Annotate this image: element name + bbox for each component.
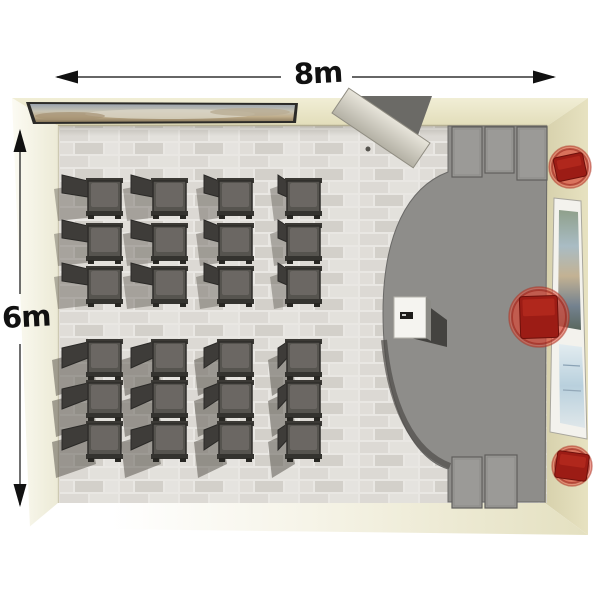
width-dimension-label: 8m [282, 54, 354, 92]
stage-cabinet [485, 455, 517, 508]
wall-panorama-picture [26, 102, 298, 124]
chair [196, 263, 254, 309]
podium-screen [400, 312, 413, 319]
chair [54, 175, 123, 221]
red-stool-top [549, 146, 591, 188]
chair [123, 175, 188, 221]
chair [54, 263, 123, 309]
chair [123, 263, 188, 309]
wall-frame-lower-photo [559, 344, 585, 428]
chair [270, 220, 322, 266]
red-presenter-chair [509, 287, 569, 347]
stage-cabinet [517, 127, 547, 180]
chair [54, 220, 123, 266]
height-dimension-label: 6m [1, 299, 43, 335]
chair [196, 220, 254, 266]
red-stool-bottom [552, 446, 592, 486]
stage-cabinet [452, 127, 482, 177]
stage-cabinet [452, 457, 482, 508]
chair [270, 263, 322, 309]
chair [270, 175, 322, 221]
stage-cabinet [485, 127, 514, 173]
floor-plan-canvas: 8m 6m [0, 0, 600, 600]
chair [123, 220, 188, 266]
chair [196, 175, 254, 221]
screen-knob [366, 147, 371, 152]
